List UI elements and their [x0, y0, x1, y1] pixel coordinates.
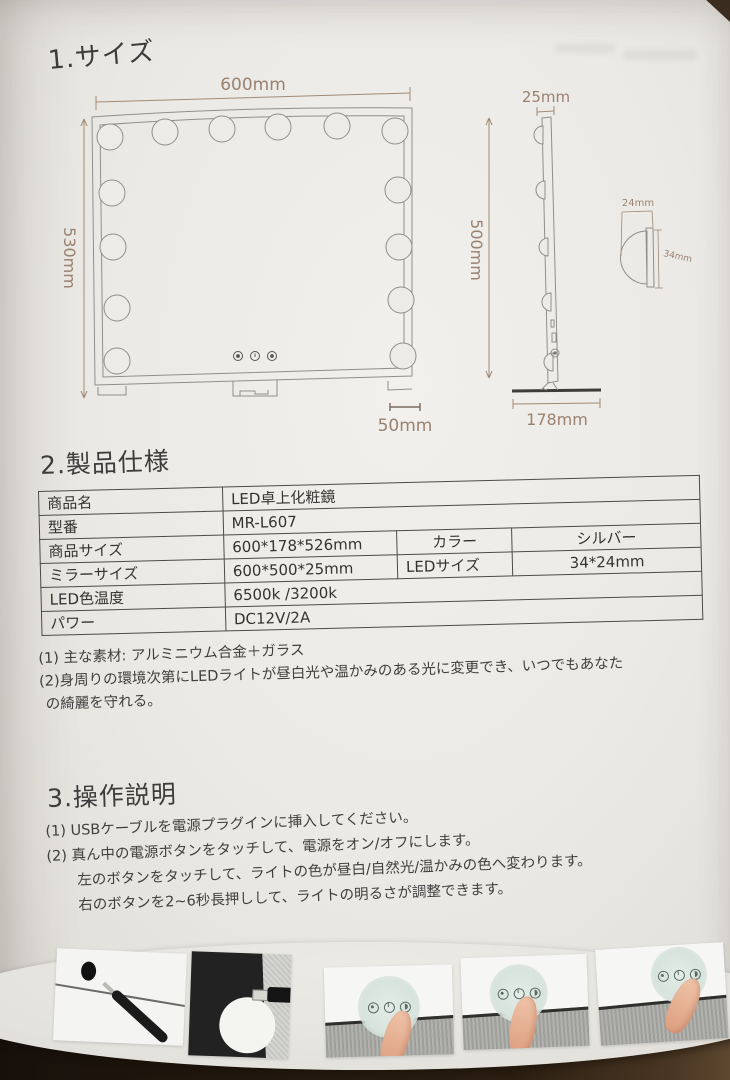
plug-body-icon — [267, 987, 292, 1003]
photo-touch-color-mode — [460, 954, 589, 1050]
plug-tip-icon — [252, 989, 268, 1001]
spec-label: カラー — [397, 528, 513, 555]
power-port-hole — [81, 961, 97, 981]
dim-front-width-label: 600mm — [220, 75, 286, 95]
spec-label: パワー — [41, 607, 225, 635]
dim-530-lines — [81, 119, 87, 398]
photo-usb-port — [53, 948, 187, 1046]
color-mode-button-icon — [497, 988, 508, 999]
mirror-frame-band — [595, 994, 729, 1045]
dim-side-thickness-label: 25mm — [522, 88, 570, 106]
size-diagrams: 600mm 530mm 50mm 25mm — [0, 0, 730, 450]
photo-touch-power — [324, 964, 454, 1057]
photo-plug-insert — [188, 951, 292, 1058]
section-operation-heading: 3.操作説明 — [46, 774, 177, 815]
dim-50-lines — [390, 403, 420, 411]
touch-buttons — [234, 352, 277, 361]
section-spec-heading: 2.製品仕様 — [39, 441, 170, 482]
dim-178-lines — [513, 398, 600, 409]
spec-label: LEDサイズ — [397, 552, 513, 579]
front-bulbs — [97, 113, 416, 374]
dim-front-height-label: 530mm — [60, 227, 79, 289]
power-button-icon — [383, 1001, 394, 1012]
bulb-detail-drawing: 24mm 34mm — [621, 198, 693, 288]
dc-plug-icon — [99, 978, 176, 1046]
front-view-drawing: 600mm 530mm 50mm — [60, 75, 432, 436]
side-view-drawing: 25mm 500mm 178mm — [467, 88, 601, 429]
dim-side-height-label: 500mm — [467, 219, 486, 281]
panel-cutout-circle — [218, 996, 276, 1054]
dim-led-width-label: 24mm — [622, 198, 654, 209]
photo-touch-brightness — [595, 942, 729, 1046]
dim-foot-width-label: 50mm — [378, 416, 433, 436]
spec-table: 商品名 LED卓上化粧鏡 型番 MR-L607 商品サイズ 600*178*52… — [38, 475, 703, 636]
power-button-icon — [673, 969, 685, 981]
dim-base-depth-label: 178mm — [526, 410, 588, 429]
front-stand — [98, 380, 412, 396]
side-base — [512, 390, 601, 391]
color-mode-button-icon — [367, 1002, 378, 1013]
color-mode-button-icon — [657, 970, 669, 982]
side-ports — [551, 320, 559, 357]
dim-led-height-label: 34mm — [662, 249, 692, 265]
